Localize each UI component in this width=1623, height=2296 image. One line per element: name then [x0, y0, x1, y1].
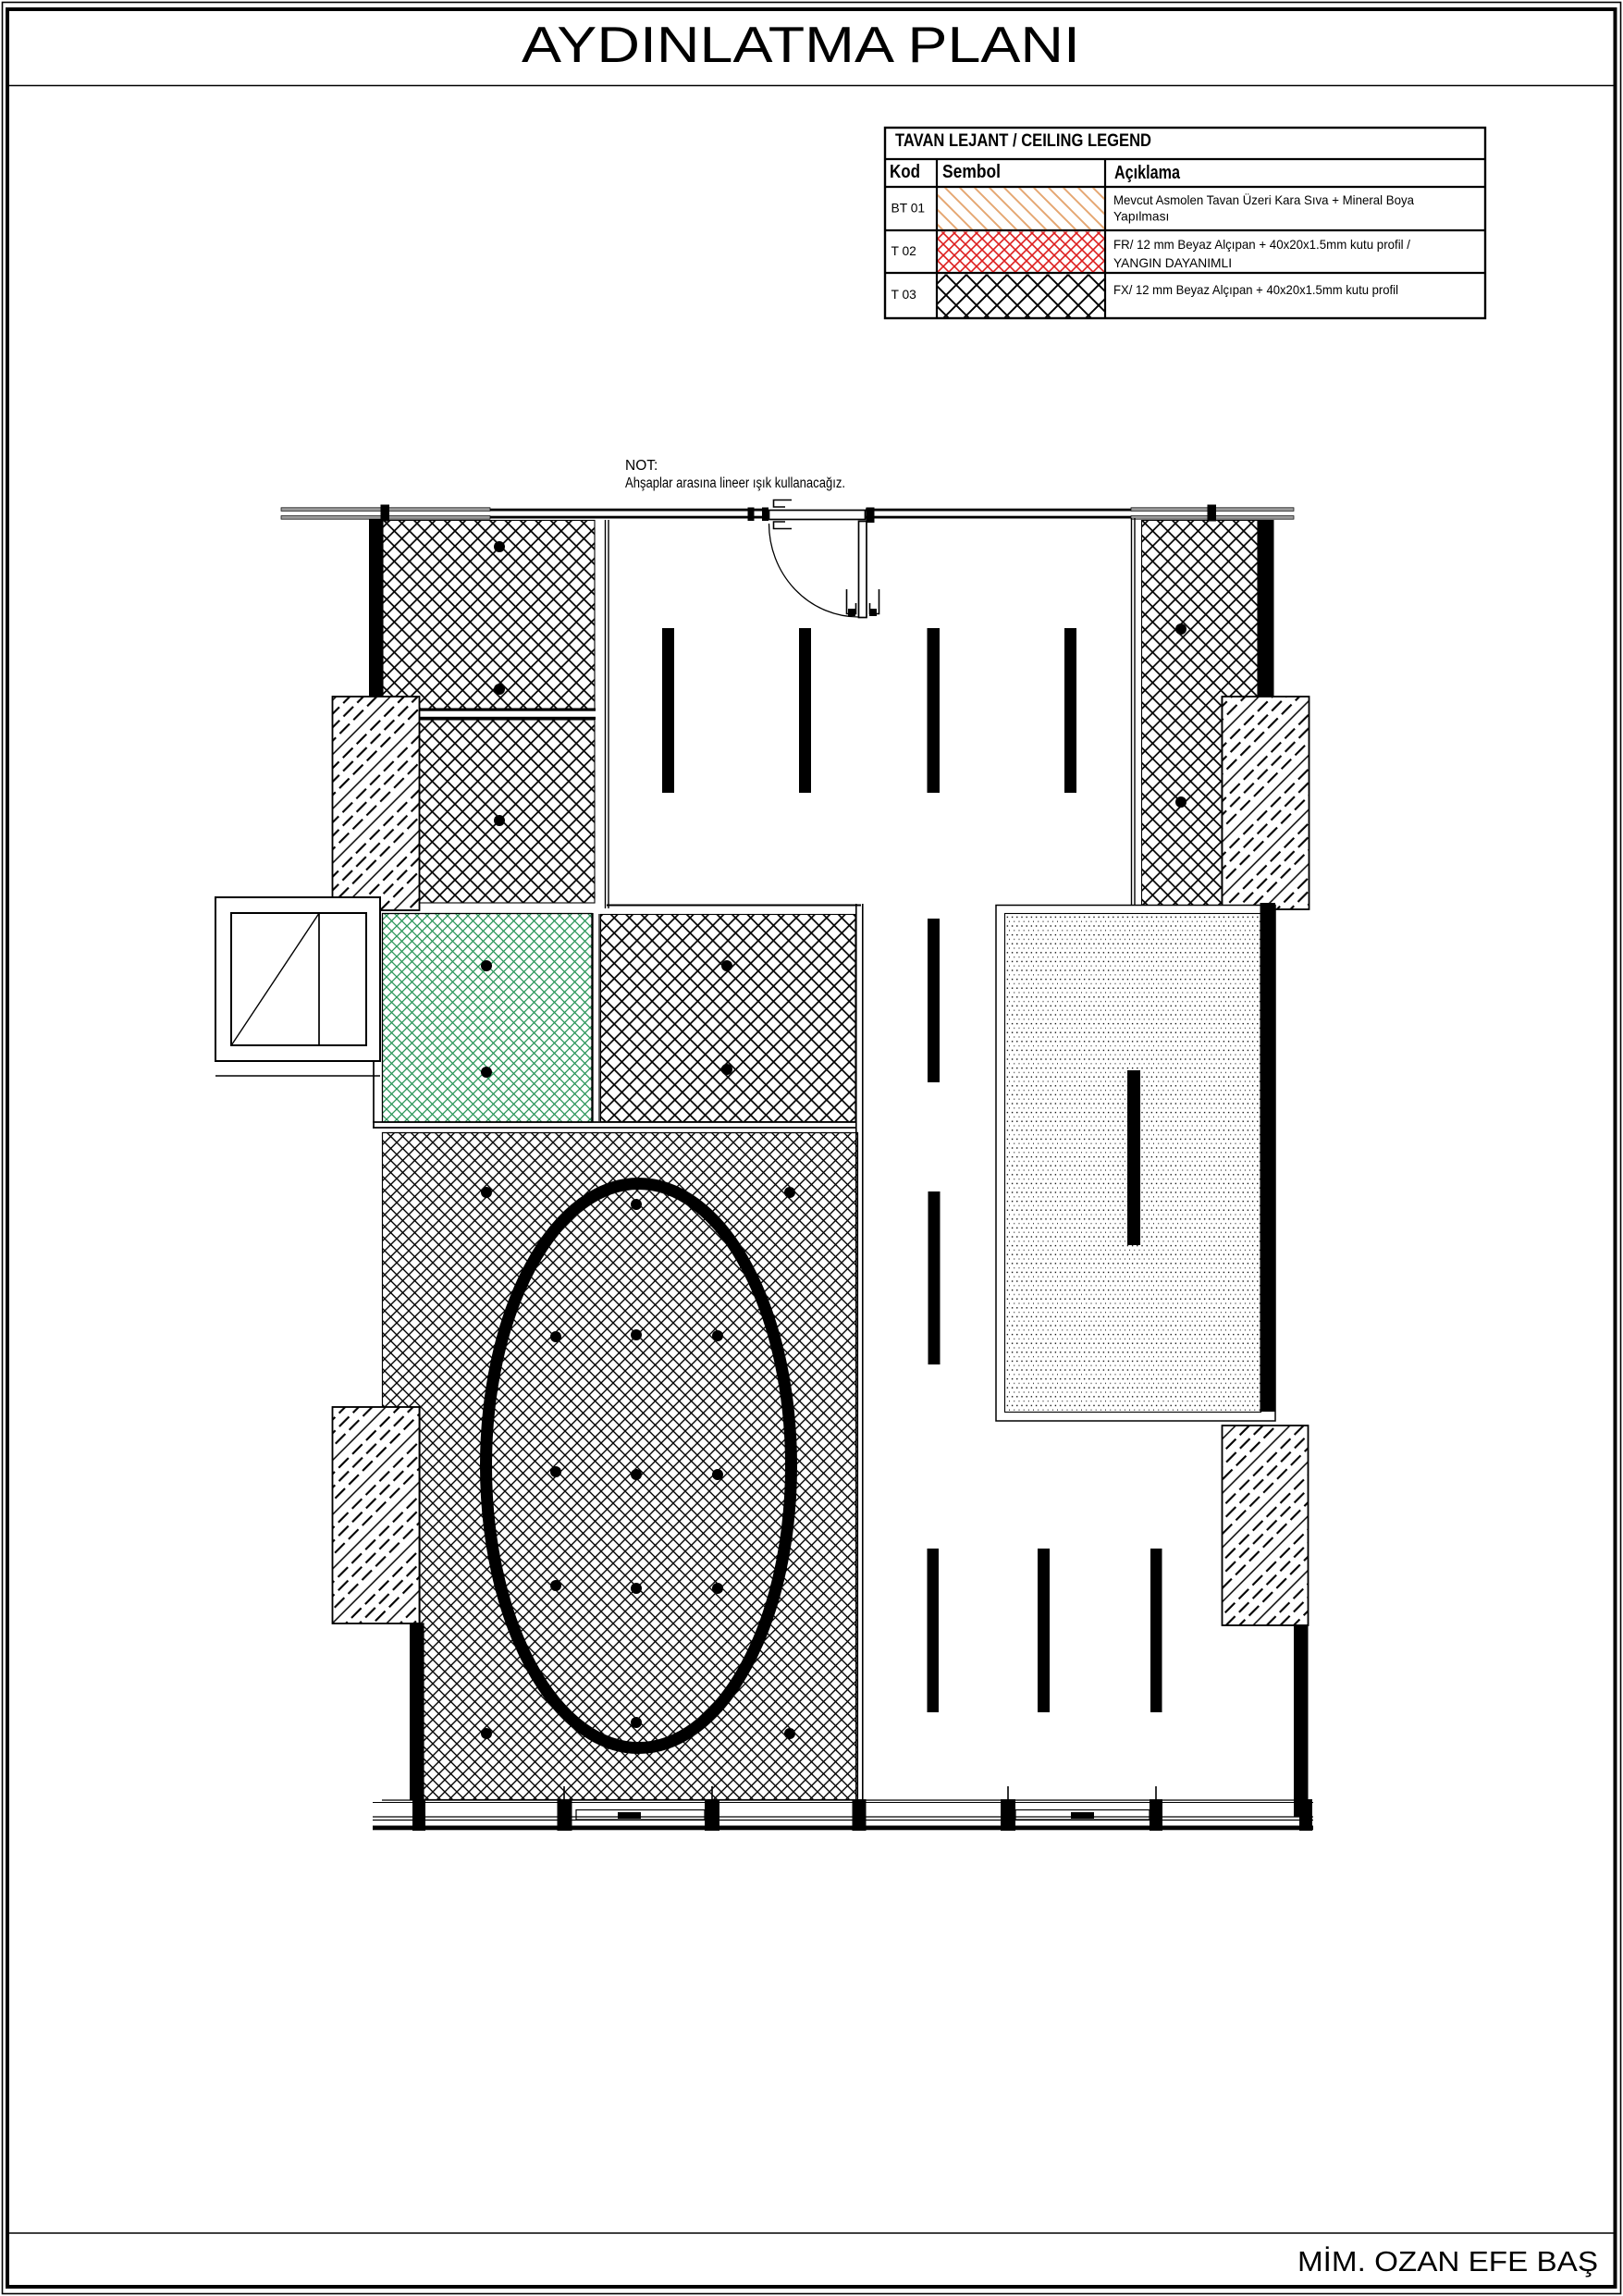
- svg-text:Yapılması: Yapılması: [1113, 210, 1169, 224]
- svg-text:TAVAN LEJANT / CEILING LEGEND: TAVAN LEJANT / CEILING LEGEND: [895, 131, 1151, 151]
- svg-text:FR/ 12 mm Beyaz Alçıpan + 40x2: FR/ 12 mm Beyaz Alçıpan + 40x20x1.5mm ku…: [1113, 238, 1410, 252]
- svg-text:Sembol: Sembol: [942, 162, 1001, 182]
- svg-text:MİM. OZAN EFE BAŞ: MİM. OZAN EFE BAŞ: [1297, 2245, 1598, 2277]
- svg-text:AYDINLATMA PLANI: AYDINLATMA PLANI: [522, 16, 1080, 73]
- svg-text:BT 01: BT 01: [891, 202, 926, 216]
- svg-text:T 02: T 02: [891, 244, 916, 258]
- svg-text:T 03: T 03: [891, 288, 917, 302]
- svg-text:Açıklama: Açıklama: [1114, 163, 1181, 183]
- svg-text:NOT:: NOT:: [625, 458, 658, 474]
- svg-text:Kod: Kod: [890, 162, 920, 182]
- svg-text:YANGIN DAYANIMLI: YANGIN DAYANIMLI: [1113, 256, 1232, 270]
- svg-text:FX/ 12 mm Beyaz Alçıpan + 40x2: FX/ 12 mm Beyaz Alçıpan + 40x20x1.5mm ku…: [1113, 283, 1398, 297]
- svg-text:Mevcut Asmolen Tavan Üzeri Kar: Mevcut Asmolen Tavan Üzeri Kara Sıva + M…: [1113, 191, 1414, 207]
- svg-text:Ahşaplar arasına lineer ışık k: Ahşaplar arasına lineer ışık kullanacağı…: [625, 475, 845, 491]
